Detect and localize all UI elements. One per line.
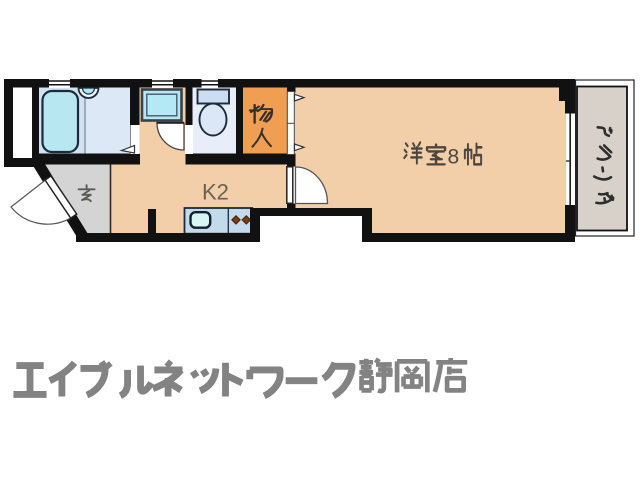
svg-text:8: 8 bbox=[448, 146, 460, 169]
svg-text:K2: K2 bbox=[202, 180, 229, 205]
